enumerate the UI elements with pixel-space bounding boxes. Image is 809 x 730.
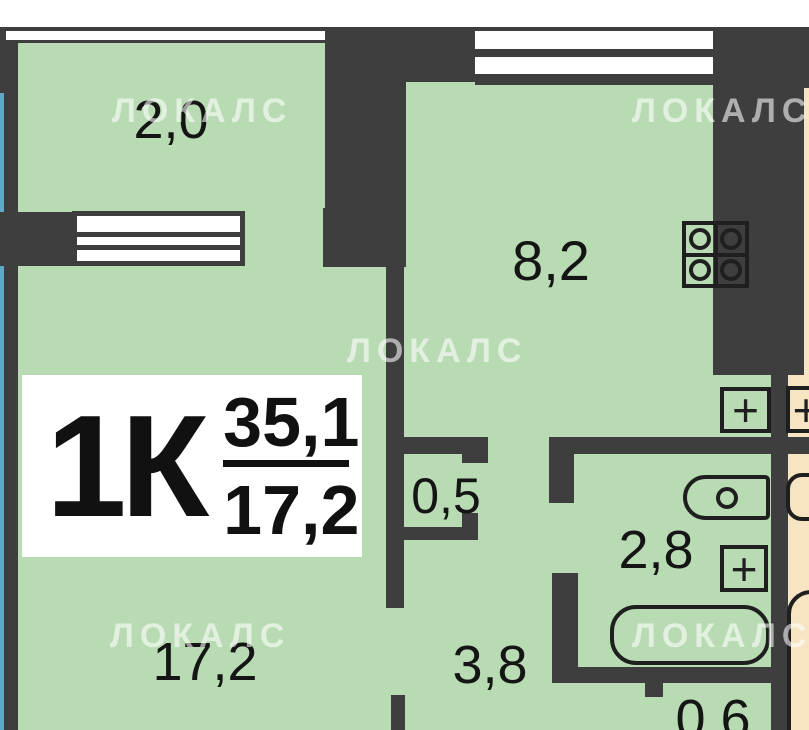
adjacent-vent-plus-icon: + bbox=[786, 386, 809, 433]
apartment-type-label: 1К bbox=[46, 394, 203, 539]
adjacent-fixture-icon bbox=[786, 473, 809, 521]
kitchen-window-line-mid bbox=[475, 49, 713, 57]
wall-bathroom-top bbox=[549, 437, 809, 454]
sink-drain bbox=[716, 487, 738, 509]
wall-bathroom-left-upper bbox=[549, 454, 574, 503]
kitchen-window-line-top bbox=[475, 27, 713, 31]
lokals-watermark: ЛОКАЛС bbox=[632, 619, 809, 653]
lokals-watermark: ЛОКАЛС bbox=[110, 619, 290, 653]
closet-area-label: 0,5 bbox=[411, 471, 481, 521]
living-area-value: 17,2 bbox=[223, 475, 359, 545]
wall-bathroom-bottom-notch bbox=[645, 683, 663, 697]
wall-center-vertical bbox=[386, 266, 404, 608]
balcony-window-line-top bbox=[6, 27, 348, 31]
stove-burner bbox=[716, 223, 748, 255]
floor-plan: + + + 1К 35,1 17,2 2,0 8,2 0,5 2,8 3,8 1… bbox=[0, 0, 809, 730]
total-area-value: 35,1 bbox=[223, 387, 359, 457]
vent-shaft-plus-icon: + bbox=[720, 387, 771, 433]
wall-closet-jamb-top bbox=[462, 454, 488, 463]
wall-closet-bottom bbox=[404, 527, 478, 540]
adjacent-unit-strip-upper bbox=[804, 88, 809, 375]
balcony-door-window bbox=[72, 211, 245, 266]
kitchen-window-line-bottom bbox=[475, 74, 713, 85]
wall-center-vertical-bottom bbox=[391, 695, 405, 730]
window-stripe bbox=[77, 232, 240, 237]
area-fraction: 35,1 17,2 bbox=[223, 387, 359, 545]
lokals-watermark: ЛОКАЛС bbox=[112, 94, 292, 128]
lokals-watermark: ЛОКАЛС bbox=[632, 94, 809, 128]
wall-bathroom-bottom bbox=[552, 667, 772, 683]
wall-right-top-a bbox=[713, 27, 809, 88]
sink-icon bbox=[683, 475, 770, 520]
stove-burner bbox=[684, 223, 716, 255]
vent-shaft-plus-icon: + bbox=[720, 545, 768, 592]
wall-balcony-right bbox=[325, 27, 348, 213]
wall-balcony-bottom-left bbox=[0, 212, 72, 266]
kitchen-area-label: 8,2 bbox=[512, 233, 590, 289]
wall-kitchen-top-arm bbox=[405, 27, 475, 82]
stove-icon bbox=[682, 221, 749, 288]
wall-closet-top bbox=[404, 437, 488, 454]
balcony-window-line-bottom bbox=[6, 40, 348, 43]
bathroom-area-label: 2,8 bbox=[618, 523, 693, 577]
fraction-divider bbox=[223, 460, 349, 467]
hallway-area-label: 3,8 bbox=[452, 638, 527, 692]
balcony-doorway bbox=[243, 206, 325, 268]
wall-bathroom-left-lower bbox=[552, 573, 578, 672]
window-stripe bbox=[77, 245, 240, 250]
adjacent-bathtub-icon bbox=[787, 590, 809, 730]
legend-box: 1К 35,1 17,2 bbox=[22, 375, 362, 557]
wall-left-outer bbox=[4, 43, 18, 730]
storage-area-label: 0,6 bbox=[675, 692, 750, 730]
stove-burner bbox=[684, 255, 716, 287]
wall-balcony-bottom-right bbox=[323, 208, 406, 267]
lokals-watermark: ЛОКАЛС bbox=[347, 334, 527, 368]
stove-burner bbox=[716, 255, 748, 287]
